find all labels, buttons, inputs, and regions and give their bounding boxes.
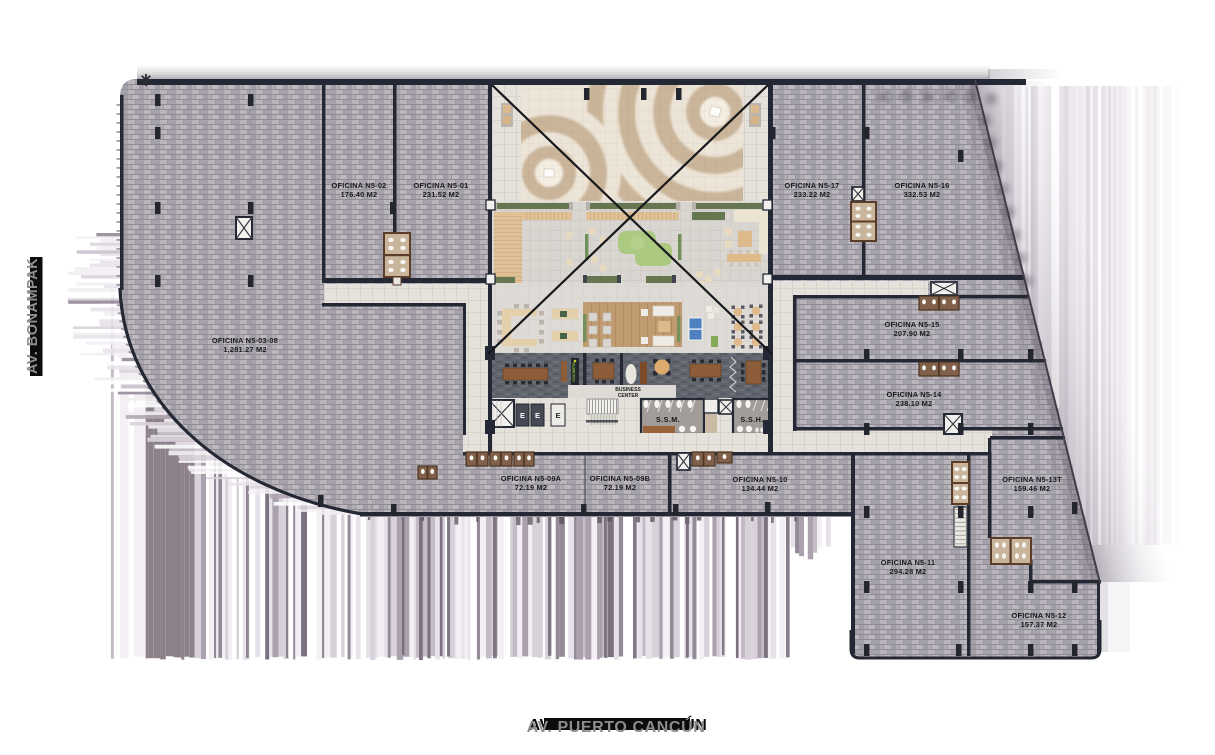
svg-text:OFICINA N5-01: OFICINA N5-01 [414,181,469,190]
svg-text:157.37 M2: 157.37 M2 [1021,620,1058,629]
svg-text:176.40 M2: 176.40 M2 [341,190,378,199]
svg-text:OFICINA N5-10: OFICINA N5-10 [733,475,788,484]
svg-text:OFICINA N5-14: OFICINA N5-14 [887,390,943,399]
svg-text:294.28 M2: 294.28 M2 [890,567,927,576]
svg-text:OFICINA N5-15: OFICINA N5-15 [885,320,940,329]
svg-text:231.52 M2: 231.52 M2 [423,190,460,199]
svg-text:E: E [535,411,540,420]
svg-text:S.S.H.: S.S.H. [740,415,763,424]
svg-text:OFICINA N5-12: OFICINA N5-12 [1012,611,1067,620]
svg-text:S.S.M.: S.S.M. [656,415,680,424]
svg-text:72.19 M2: 72.19 M2 [604,483,636,492]
svg-text:OFICINA N5-17: OFICINA N5-17 [785,181,840,190]
svg-text:OFICINA N5-03-08: OFICINA N5-03-08 [212,336,278,345]
svg-text:OFICINA N5-09A: OFICINA N5-09A [501,474,562,483]
svg-text:238.10 M2: 238.10 M2 [896,399,933,408]
svg-text:OFICINA N5-13T: OFICINA N5-13T [1002,475,1062,484]
svg-text:233.22 M2: 233.22 M2 [794,190,831,199]
svg-text:AV. PUERTO CANCÚN: AV. PUERTO CANCÚN [527,717,706,736]
svg-text:332.53 M2: 332.53 M2 [904,190,941,199]
svg-text:159.46 M2: 159.46 M2 [1014,484,1051,493]
svg-text:E: E [555,411,560,420]
svg-text:OFICINA N5-11: OFICINA N5-11 [881,558,935,567]
svg-text:AV. BONAMPAK: AV. BONAMPAK [25,258,41,374]
svg-text:134.44 M2: 134.44 M2 [742,484,779,493]
svg-text:1,281.27 M2: 1,281.27 M2 [223,345,266,354]
svg-text:COCINETA: COCINETA [572,362,576,382]
svg-text:OFICINA N5-16: OFICINA N5-16 [895,181,950,190]
svg-text:OFICINA N5-02: OFICINA N5-02 [332,181,387,190]
svg-text:207.90 M2: 207.90 M2 [894,329,931,338]
svg-text:OFICINA N5-09B: OFICINA N5-09B [590,474,650,483]
svg-text:72.19 M2: 72.19 M2 [515,483,547,492]
svg-text:E: E [520,411,525,420]
